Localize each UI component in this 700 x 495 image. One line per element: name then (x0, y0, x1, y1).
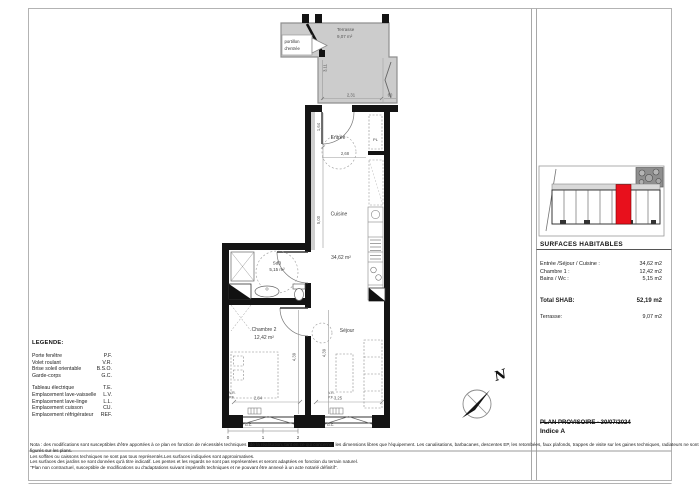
legend-row: Tableau électriqueT.E. (32, 385, 112, 392)
building-balcony-band (552, 184, 660, 190)
north-compass: N (462, 367, 510, 418)
scale-tick-2: 2 (297, 435, 300, 440)
window-gc-label-1: G.C. (245, 423, 252, 427)
room-sdb: SdB (273, 261, 282, 266)
terrace-row: Terrasse:9,07 m2 (540, 314, 662, 320)
room-chambre-area: 12,42 m² (254, 335, 274, 341)
total-shab-label: Total SHAB: (540, 298, 575, 304)
gate-label-box (282, 35, 312, 55)
compass-needle (462, 390, 490, 418)
scale-bar: 0 1 2 (227, 429, 300, 441)
legend-label: Emplacement cuisson (32, 405, 83, 412)
closet (369, 115, 382, 149)
room-placard: PL (373, 137, 379, 142)
dim-sejour-width: 3,25 (334, 396, 343, 401)
window-vr-label-1: V.R. (229, 391, 236, 395)
technical-duct-icon (229, 284, 251, 299)
surface-label: Chambre 1 : (540, 269, 570, 277)
legend: LEGENDE: Porte fenêtreP.F. Volet roulant… (32, 340, 112, 418)
north-letter: N (492, 367, 510, 386)
room-sejour: Séjour (340, 328, 355, 334)
scale-tick-1: 1 (262, 435, 265, 440)
gate-label-line2: d'entrée (285, 46, 301, 51)
surface-label: Entrée /Séjour / Cuisine : (540, 261, 600, 269)
surfaces-panel: SURFACES HABITABLES Entrée /Séjour / Cui… (540, 241, 662, 320)
dim-entree-width: 2,68 (341, 151, 350, 156)
terrace: portillon d'entrée Terrasse 9,07 m² 3,11… (281, 14, 397, 103)
legend-title: LEGENDE: (32, 340, 112, 346)
note-redacted-text: de la réalisation, tant en ce qui concer… (248, 442, 335, 447)
window-pf-label-1: P.F. (229, 396, 235, 400)
title-block: PLAN PROVISOIRE - 30/07/2024 Indice A (540, 420, 666, 435)
surface-value: 34,62 m2 (640, 261, 662, 269)
total-shab-row: Total SHAB:52,19 m2 (540, 298, 662, 304)
wall-lining (311, 112, 315, 250)
legend-label: Porte fenêtre (32, 353, 62, 360)
bed (231, 352, 278, 398)
legend-label: Emplacement réfrigérateur (32, 412, 93, 419)
legend-row: Porte fenêtreP.F. (32, 353, 112, 360)
surface-value: 12,42 m2 (640, 269, 662, 277)
total-shab-value: 52,19 m2 (637, 298, 662, 304)
note-text: Nota : des modifications sont susceptibl… (30, 442, 248, 447)
legend-abbr: V.R. (102, 360, 112, 367)
table (336, 354, 353, 392)
dim-terrace-height: 3,11 (323, 63, 328, 72)
plan-index: Indice A (540, 428, 666, 435)
legend-row: Emplacement cuissonCU. (32, 405, 112, 412)
legend-row: Emplacement lave-vaisselleL.V. (32, 392, 112, 399)
legend-label: Emplacement lave-linge (32, 399, 87, 406)
plan-status: PLAN PROVISOIRE - 30/07/2024 (540, 420, 666, 426)
dimension-labels: 2,84 3,25 4,39 4,39 1,64 5,00 2,68 (254, 122, 350, 400)
legend-row: Brise soleil orientableB.S.O. (32, 366, 112, 373)
legend-label: Tableau électrique (32, 385, 74, 392)
legend-label: Brise soleil orientable (32, 366, 81, 373)
legend-abbr: B.S.O. (97, 366, 112, 373)
legend-abbr: P.F. (104, 353, 112, 360)
surfaces-title: SURFACES HABITABLES (540, 241, 662, 248)
room-sdb-area: 5,15 m² (269, 267, 285, 272)
gate-label-line1: portillon (285, 39, 301, 44)
legend-label: Emplacement lave-vaisselle (32, 392, 96, 399)
dim-cuisine-height: 5,00 (316, 215, 321, 224)
legend-abbr: REF. (101, 412, 112, 419)
fence-posts (302, 14, 389, 23)
surface-value: 5,15 m2 (643, 276, 662, 284)
surface-label: Bains / Wc : (540, 276, 569, 284)
legend-row: Emplacement réfrigérateurREF. (32, 412, 112, 419)
note-line-5: "Plan non contractuel, susceptible de mo… (30, 465, 678, 471)
legend-abbr: L.L. (103, 399, 112, 406)
electric-panel-icon (369, 288, 385, 301)
terrace-label: Terrasse: (540, 314, 562, 320)
window-gc-label-2: G.C. (327, 423, 334, 427)
legend-abbr: CU. (103, 405, 112, 412)
sofa (364, 340, 382, 408)
building-outline (552, 190, 660, 224)
room-chambre: Chambre 2 (252, 327, 277, 333)
highlighted-unit (616, 185, 631, 225)
dim-chambre-height: 4,39 (292, 352, 297, 361)
legend-row: Garde-corpsG.C. (32, 373, 112, 380)
room-cuisine: Cuisine (331, 212, 348, 218)
legend-abbr: T.E. (103, 385, 112, 392)
terrace-label: Terrasse (337, 27, 355, 32)
key-plan (539, 166, 664, 236)
legend-row: Volet roulantV.R. (32, 360, 112, 367)
legend-label: Garde-corps (32, 373, 61, 380)
legend-label: Volet roulant (32, 360, 61, 367)
note-text: les dimensions libres que l'équipement. … (334, 442, 700, 447)
dim-sejour-height: 4,39 (322, 348, 327, 357)
terrace-value: 9,07 m2 (643, 314, 662, 320)
dim-terrace-width: 2,31 (347, 93, 356, 98)
room-cuisine-area: 34,62 m² (331, 255, 351, 261)
room-labels: Entrée Cuisine 34,62 m² SdB 5,15 m² Cham… (252, 135, 379, 341)
legend-abbr: G.C. (101, 373, 112, 380)
note-line-1: Nota : des modifications sont susceptibl… (30, 442, 678, 448)
legend-abbr: L.V. (103, 392, 112, 399)
terrace-area: 9,07 m² (337, 34, 353, 39)
wardrobe (231, 305, 251, 331)
kitchen-counter (368, 207, 383, 300)
surface-row: Entrée /Séjour / Cuisine :34,62 m2 (540, 261, 662, 269)
dim-terrace-door: 60 (388, 93, 393, 98)
notes: Nota : des modifications sont susceptibl… (30, 442, 678, 471)
shower-icon (231, 252, 254, 281)
surface-row: Chambre 1 :12,42 m2 (540, 269, 662, 277)
legend-row: Emplacement lave-lingeL.L. (32, 399, 112, 406)
window-vr-label-2: V.R. (328, 391, 335, 395)
floor-plan-page: N portillon d'entrée Terrasse 9,07 m² 3,… (0, 0, 700, 495)
surface-row: Bains / Wc :5,15 m2 (540, 276, 662, 284)
dim-entree-height: 1,64 (316, 122, 321, 131)
scale-tick-0: 0 (227, 435, 230, 440)
room-entree: Entrée (331, 135, 346, 141)
